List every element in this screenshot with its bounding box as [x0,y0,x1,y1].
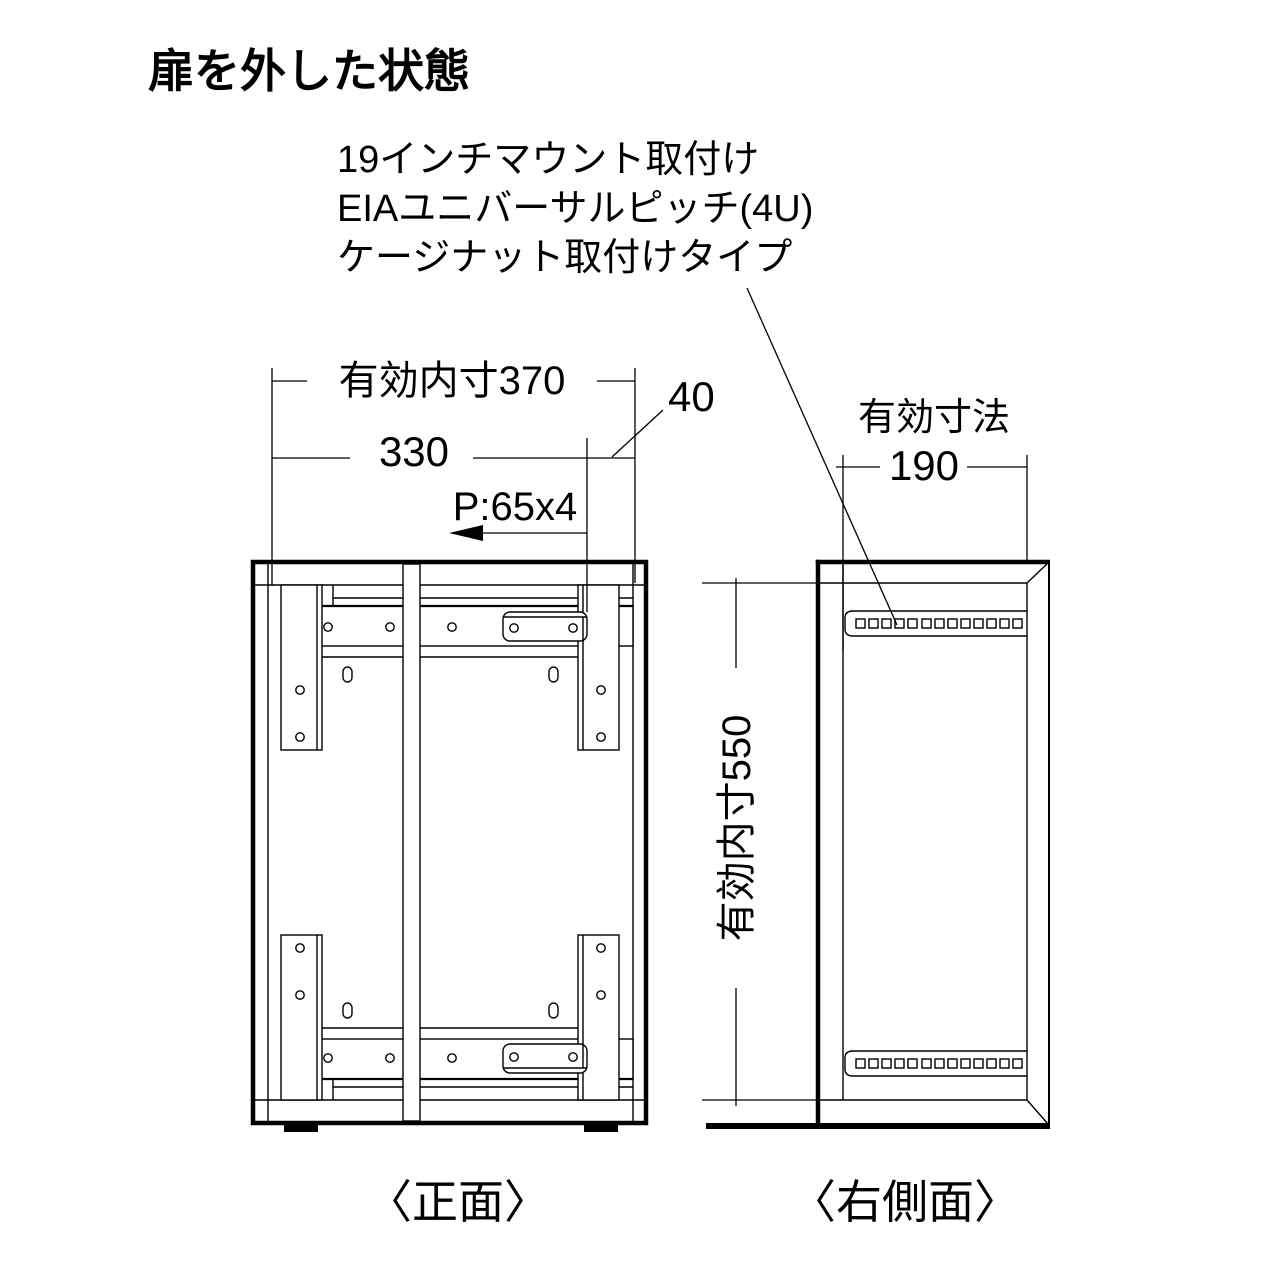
slot-hole [343,667,352,682]
side-bottom-chamfer [1027,1100,1048,1124]
front-center-post [403,564,420,1121]
front-top-left-angle [281,585,322,750]
front-view-caption: 〈正面〉 [366,1176,550,1228]
dim-label-offset: 40 [668,373,715,420]
annotation-line-3: ケージナット取付けタイプ [337,237,792,279]
front-bottom-right-angle [578,935,619,1100]
front-view [253,562,646,1132]
front-foot [584,1124,618,1132]
slot-hole [549,1003,558,1018]
dim-label-effective: 有効寸法 [858,397,1010,439]
dim-label-hole-pitch: P:65x4 [453,485,578,529]
drawing-page: 有効内寸370 330 40 P:65x4 有効内寸550 [0,0,1280,1280]
side-top-cage-nut-rail [845,611,1027,636]
page-title: 扉を外した状態 [148,45,470,97]
cage-nut-holes-bottom [856,1059,1022,1068]
dim-label-depth: 190 [889,442,959,489]
front-bottom-rail-assembly [281,935,633,1100]
dim-depth-190: 有効寸法 190 [836,397,1027,650]
dim-label-mount-width: 330 [379,428,449,475]
technical-drawing: 有効内寸370 330 40 P:65x4 有効内寸550 [0,0,1280,1280]
slot-hole [343,1003,352,1018]
dim-label-inner-height: 有効内寸550 [715,715,759,942]
dim-label-inner-width: 有効内寸370 [339,359,566,403]
dim-inner-width-370: 有効内寸370 [272,359,635,585]
dim-inner-height-550: 有効内寸550 [702,578,820,1106]
dimensions: 有効内寸370 330 40 P:65x4 有効内寸550 [272,359,1027,1106]
front-foot [284,1124,318,1132]
slot-hole [549,667,558,682]
front-top-right-angle [578,585,619,750]
dim-hole-pitch: P:65x4 [449,485,587,541]
side-top-chamfer [1027,563,1048,583]
annotation-line-1: 19インチマウント取付け [337,139,759,181]
dim-offset-40: 40 [612,373,715,457]
side-bottom-cage-nut-rail [845,1051,1027,1076]
annotation-line-2: EIAユニバーサルピッチ(4U) [337,188,813,230]
cage-nut-holes-top [856,619,1022,628]
side-view-caption: 〈右側面〉 [790,1176,1020,1228]
dim-40-leader [612,410,663,457]
front-bottom-left-angle [281,935,322,1100]
front-top-rail-assembly [281,585,633,750]
annotation-leader-line [747,288,897,625]
